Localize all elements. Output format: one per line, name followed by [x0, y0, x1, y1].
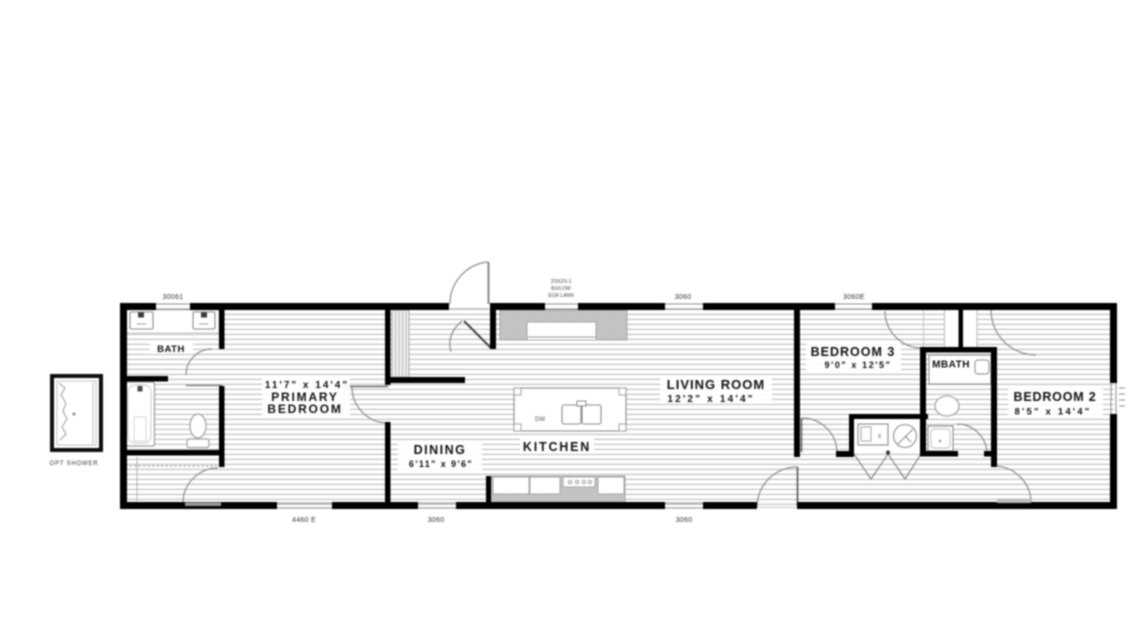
svg-text:3060E: 3060E	[843, 294, 865, 301]
svg-text:DW: DW	[535, 417, 545, 423]
svg-text:BEDROOM: BEDROOM	[267, 402, 342, 416]
svg-text:E: E	[878, 434, 882, 440]
svg-text:BEDROOM 3: BEDROOM 3	[811, 345, 896, 359]
svg-text:3'0X3'0-1: 3'0X3'0-1	[551, 279, 572, 285]
svg-text:DINING: DINING	[414, 443, 467, 457]
svg-text:4460 E: 4460 E	[292, 517, 316, 524]
svg-text:BEDROOM 2: BEDROOM 2	[1014, 390, 1097, 404]
svg-text:BX/LOW: BX/LOW	[551, 286, 571, 292]
svg-text:3060: 3060	[675, 294, 692, 301]
svg-text:9'0" x 12'5": 9'0" x 12'5"	[824, 360, 891, 370]
svg-text:3060: 3060	[428, 517, 445, 524]
svg-text:6'11" x 9'6": 6'11" x 9'6"	[409, 459, 473, 469]
svg-text:LIVING ROOM: LIVING ROOM	[667, 377, 765, 392]
svg-text:KITCHEN: KITCHEN	[523, 440, 591, 454]
svg-text:3060: 3060	[676, 517, 693, 524]
svg-text:MBATH: MBATH	[932, 360, 970, 371]
svg-text:BATH: BATH	[157, 344, 185, 355]
svg-text:8'5" x 14'4": 8'5" x 14'4"	[1015, 407, 1092, 418]
svg-text:30061: 30061	[163, 294, 184, 301]
svg-text:OPT SHOWER: OPT SHOWER	[50, 461, 99, 467]
svg-text:EGR LANN: EGR LANN	[548, 293, 574, 299]
svg-text:12'2" x 14'4": 12'2" x 14'4"	[667, 394, 754, 405]
